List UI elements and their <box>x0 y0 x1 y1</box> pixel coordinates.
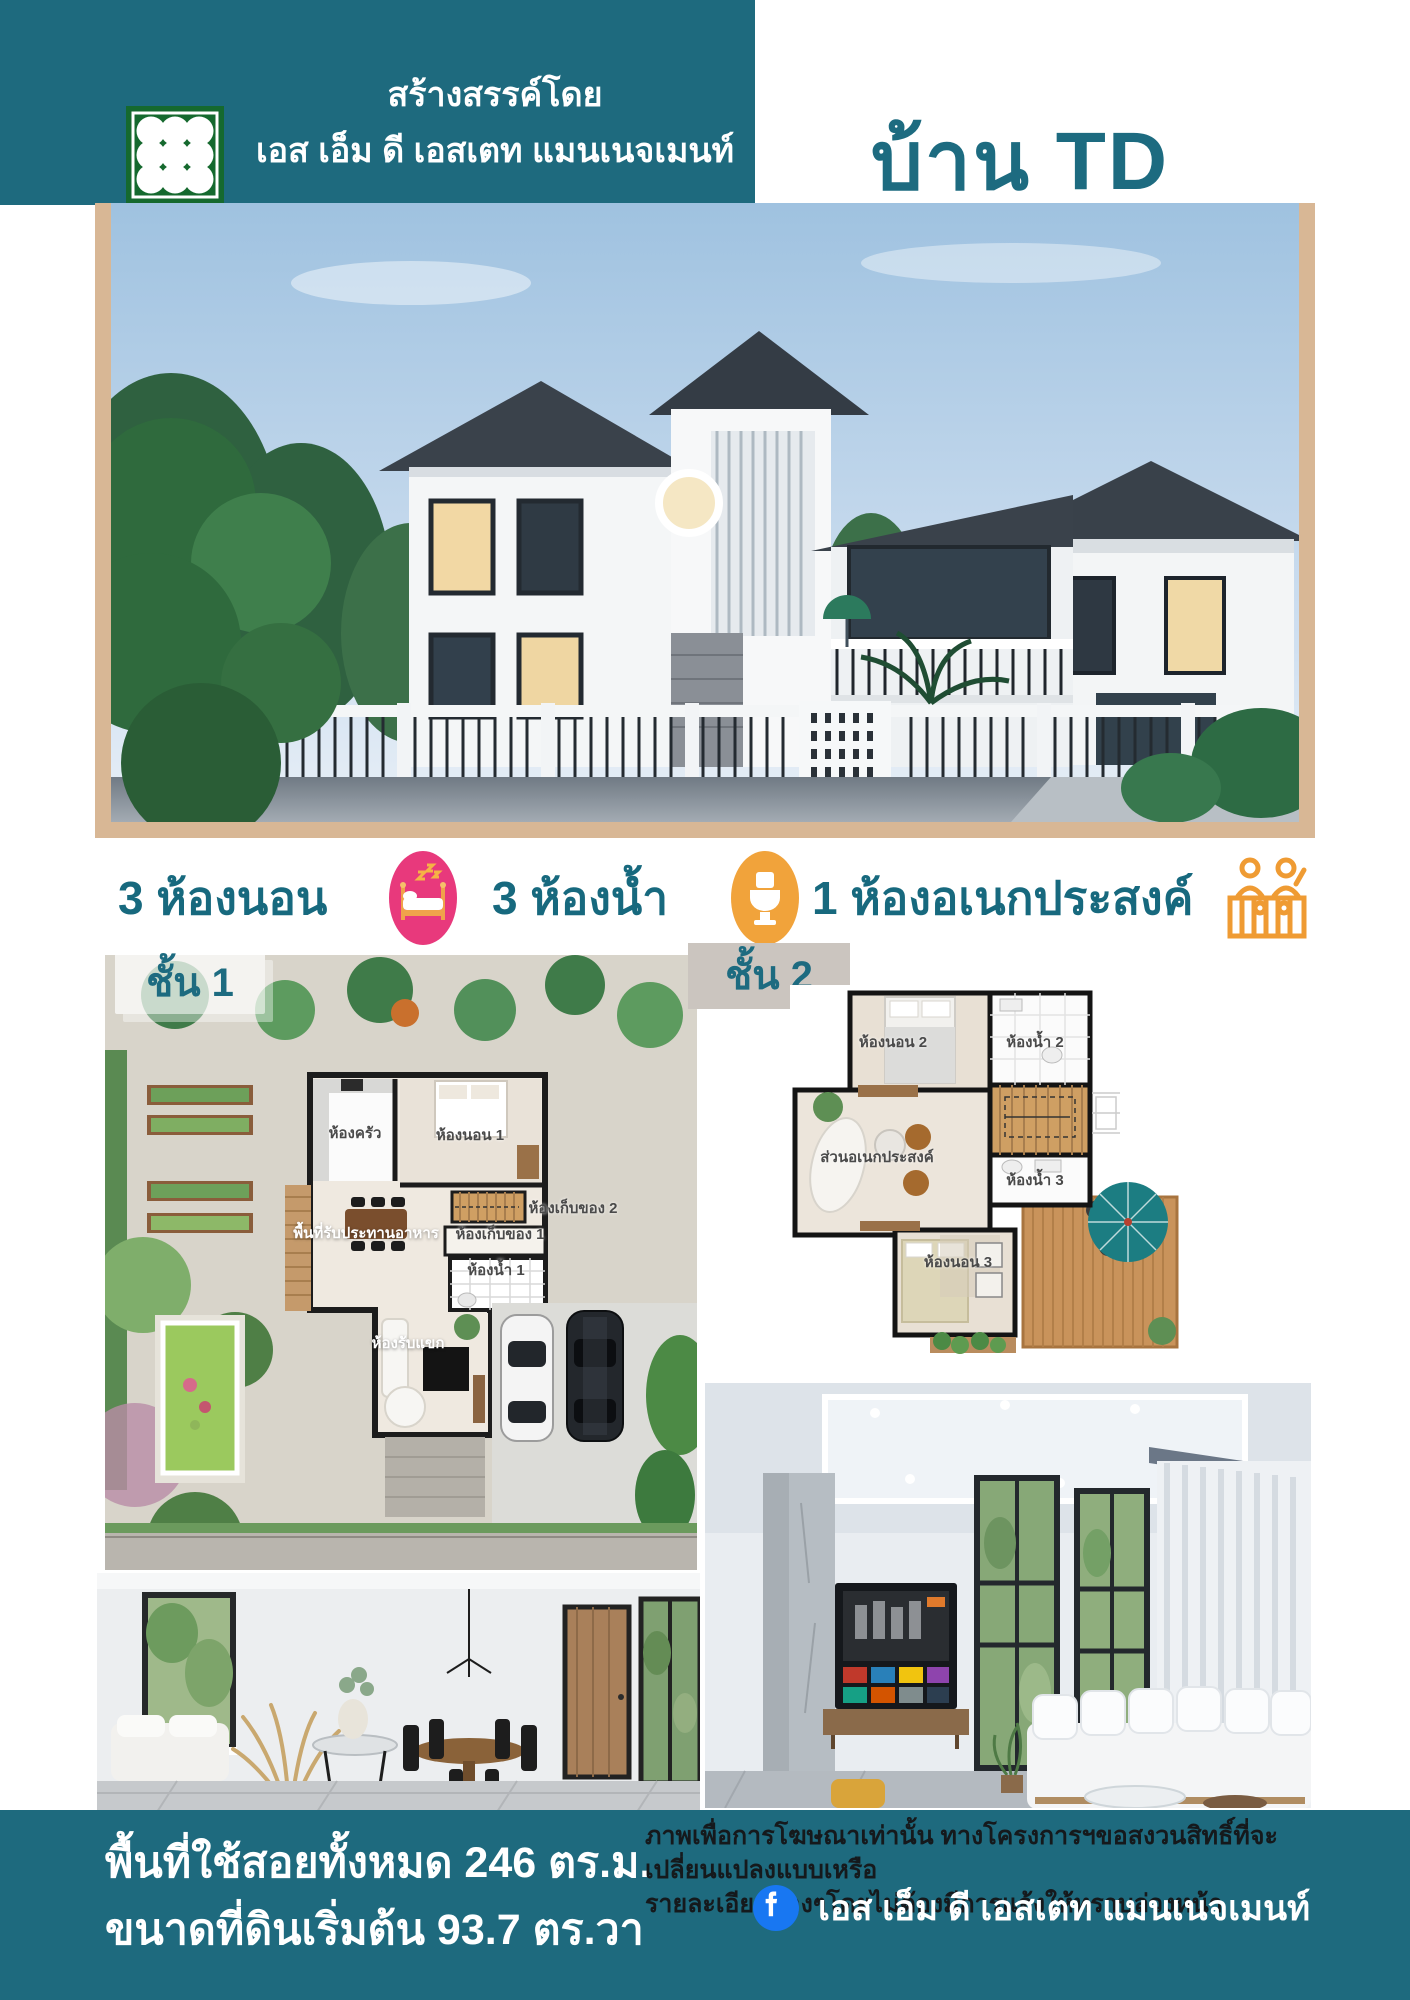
white-car <box>501 1315 553 1441</box>
facebook-row: เอส เอ็ม ดี เอสเตท แมนเนจเมนท์ <box>752 1882 1310 1934</box>
round-window <box>659 473 719 533</box>
room-label-storage-1: ห้องเก็บของ 1 <box>455 1222 544 1246</box>
room-label-living-room: ห้องรับแขก <box>372 1331 445 1355</box>
bed-icon <box>388 850 458 946</box>
total-area-text: พื้นที่ใช้สอยทั้งหมด 246 ตร.ม. <box>105 1828 651 1896</box>
bathrooms-label: 3 ห้องน้ำ <box>492 862 668 935</box>
room-label-bedroom-3: ห้องนอน 3 <box>924 1250 992 1274</box>
floor-plan-2: ห้องนอน 2 ห้องน้ำ 2 ส่วนอเนกประสงค์ ห้อง… <box>790 985 1190 1360</box>
land-size-text: ขนาดที่ดินเริ่มต้น 93.7 ตร.วา <box>105 1895 644 1963</box>
deck-umbrella-icon <box>1088 1182 1168 1262</box>
header-text: สร้างสรรค์โดย เอส เอ็ม ดี เอสเตท แมนเนจเ… <box>235 78 755 168</box>
tv-screen <box>835 1583 957 1709</box>
hanging-chair <box>391 999 419 1027</box>
room-label-bedroom-2: ห้องนอน 2 <box>859 1030 927 1054</box>
living-interior-photo <box>705 1383 1311 1808</box>
floor-plan-1: ห้องครัว ห้องนอน 1 พื้นที่รับประทานอาหาร… <box>105 955 697 1570</box>
family-icon <box>1222 856 1312 942</box>
room-label-bathroom-1: ห้องน้ำ 1 <box>467 1258 524 1282</box>
smd-grid-logo-icon <box>126 106 224 204</box>
black-car <box>567 1311 623 1441</box>
brochure-page: สร้างสรรค์โดย เอส เอ็ม ดี เอสเตท แมนเนจเ… <box>0 0 1410 2000</box>
house-exterior-photo <box>95 203 1315 838</box>
floor-1-label: ชั้น 1 <box>115 952 265 1014</box>
company-name: เอส เอ็ม ดี เอสเตท แมนเนจเมนท์ <box>235 134 755 168</box>
room-label-storage-2: ห้องเก็บของ 2 <box>528 1196 617 1220</box>
dining-interior-photo <box>97 1573 700 1812</box>
disclaimer-line-1: ภาพเพื่อการโฆษณาเท่านั้น ทางโครงการฯขอสง… <box>645 1820 1325 1888</box>
room-label-multipurpose-area: ส่วนอเนกประสงค์ <box>820 1145 933 1169</box>
room-label-kitchen: ห้องครัว <box>329 1121 382 1145</box>
facebook-icon <box>752 1884 800 1932</box>
room-label-bathroom-2: ห้องน้ำ 2 <box>1006 1030 1063 1054</box>
room-label-bathroom-3: ห้องน้ำ 3 <box>1006 1168 1063 1192</box>
facebook-page-name: เอส เอ็ม ดี เอสเตท แมนเนจเมนท์ <box>818 1881 1310 1936</box>
bedrooms-label: 3 ห้องนอน <box>118 862 327 935</box>
room-label-dining-area: พื้นที่รับประทานอาหาร <box>293 1221 439 1245</box>
toilet-icon <box>730 850 800 946</box>
created-by-label: สร้างสรรค์โดย <box>235 78 755 112</box>
multipurpose-label: 1 ห้องอเนกประสงค์ <box>812 862 1193 935</box>
room-label-bedroom-1: ห้องนอน 1 <box>436 1123 504 1147</box>
